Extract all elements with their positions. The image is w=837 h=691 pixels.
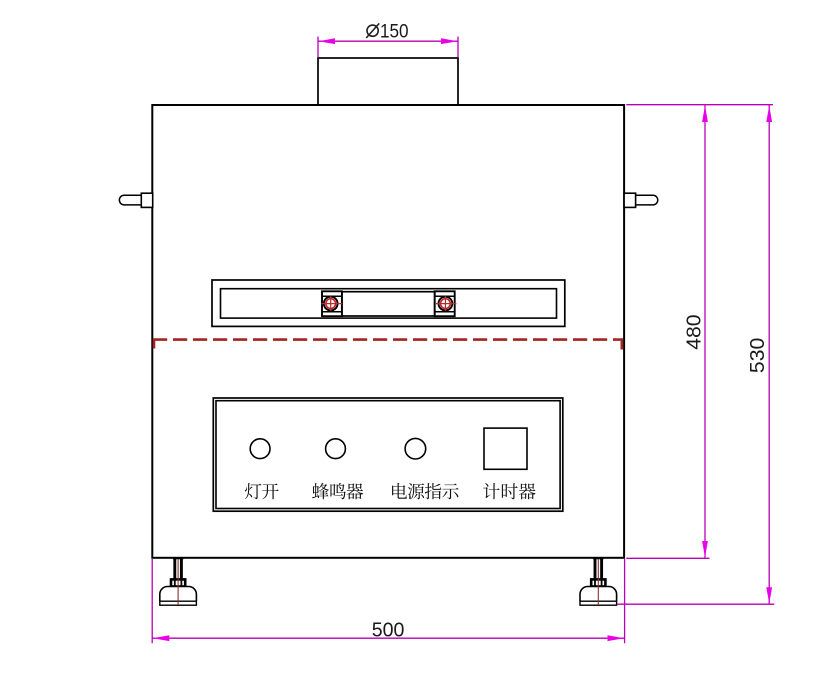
svg-text:480: 480 bbox=[684, 314, 706, 349]
svg-text:150: 150 bbox=[380, 20, 409, 42]
svg-text:530: 530 bbox=[747, 338, 769, 373]
svg-text:500: 500 bbox=[372, 619, 405, 641]
